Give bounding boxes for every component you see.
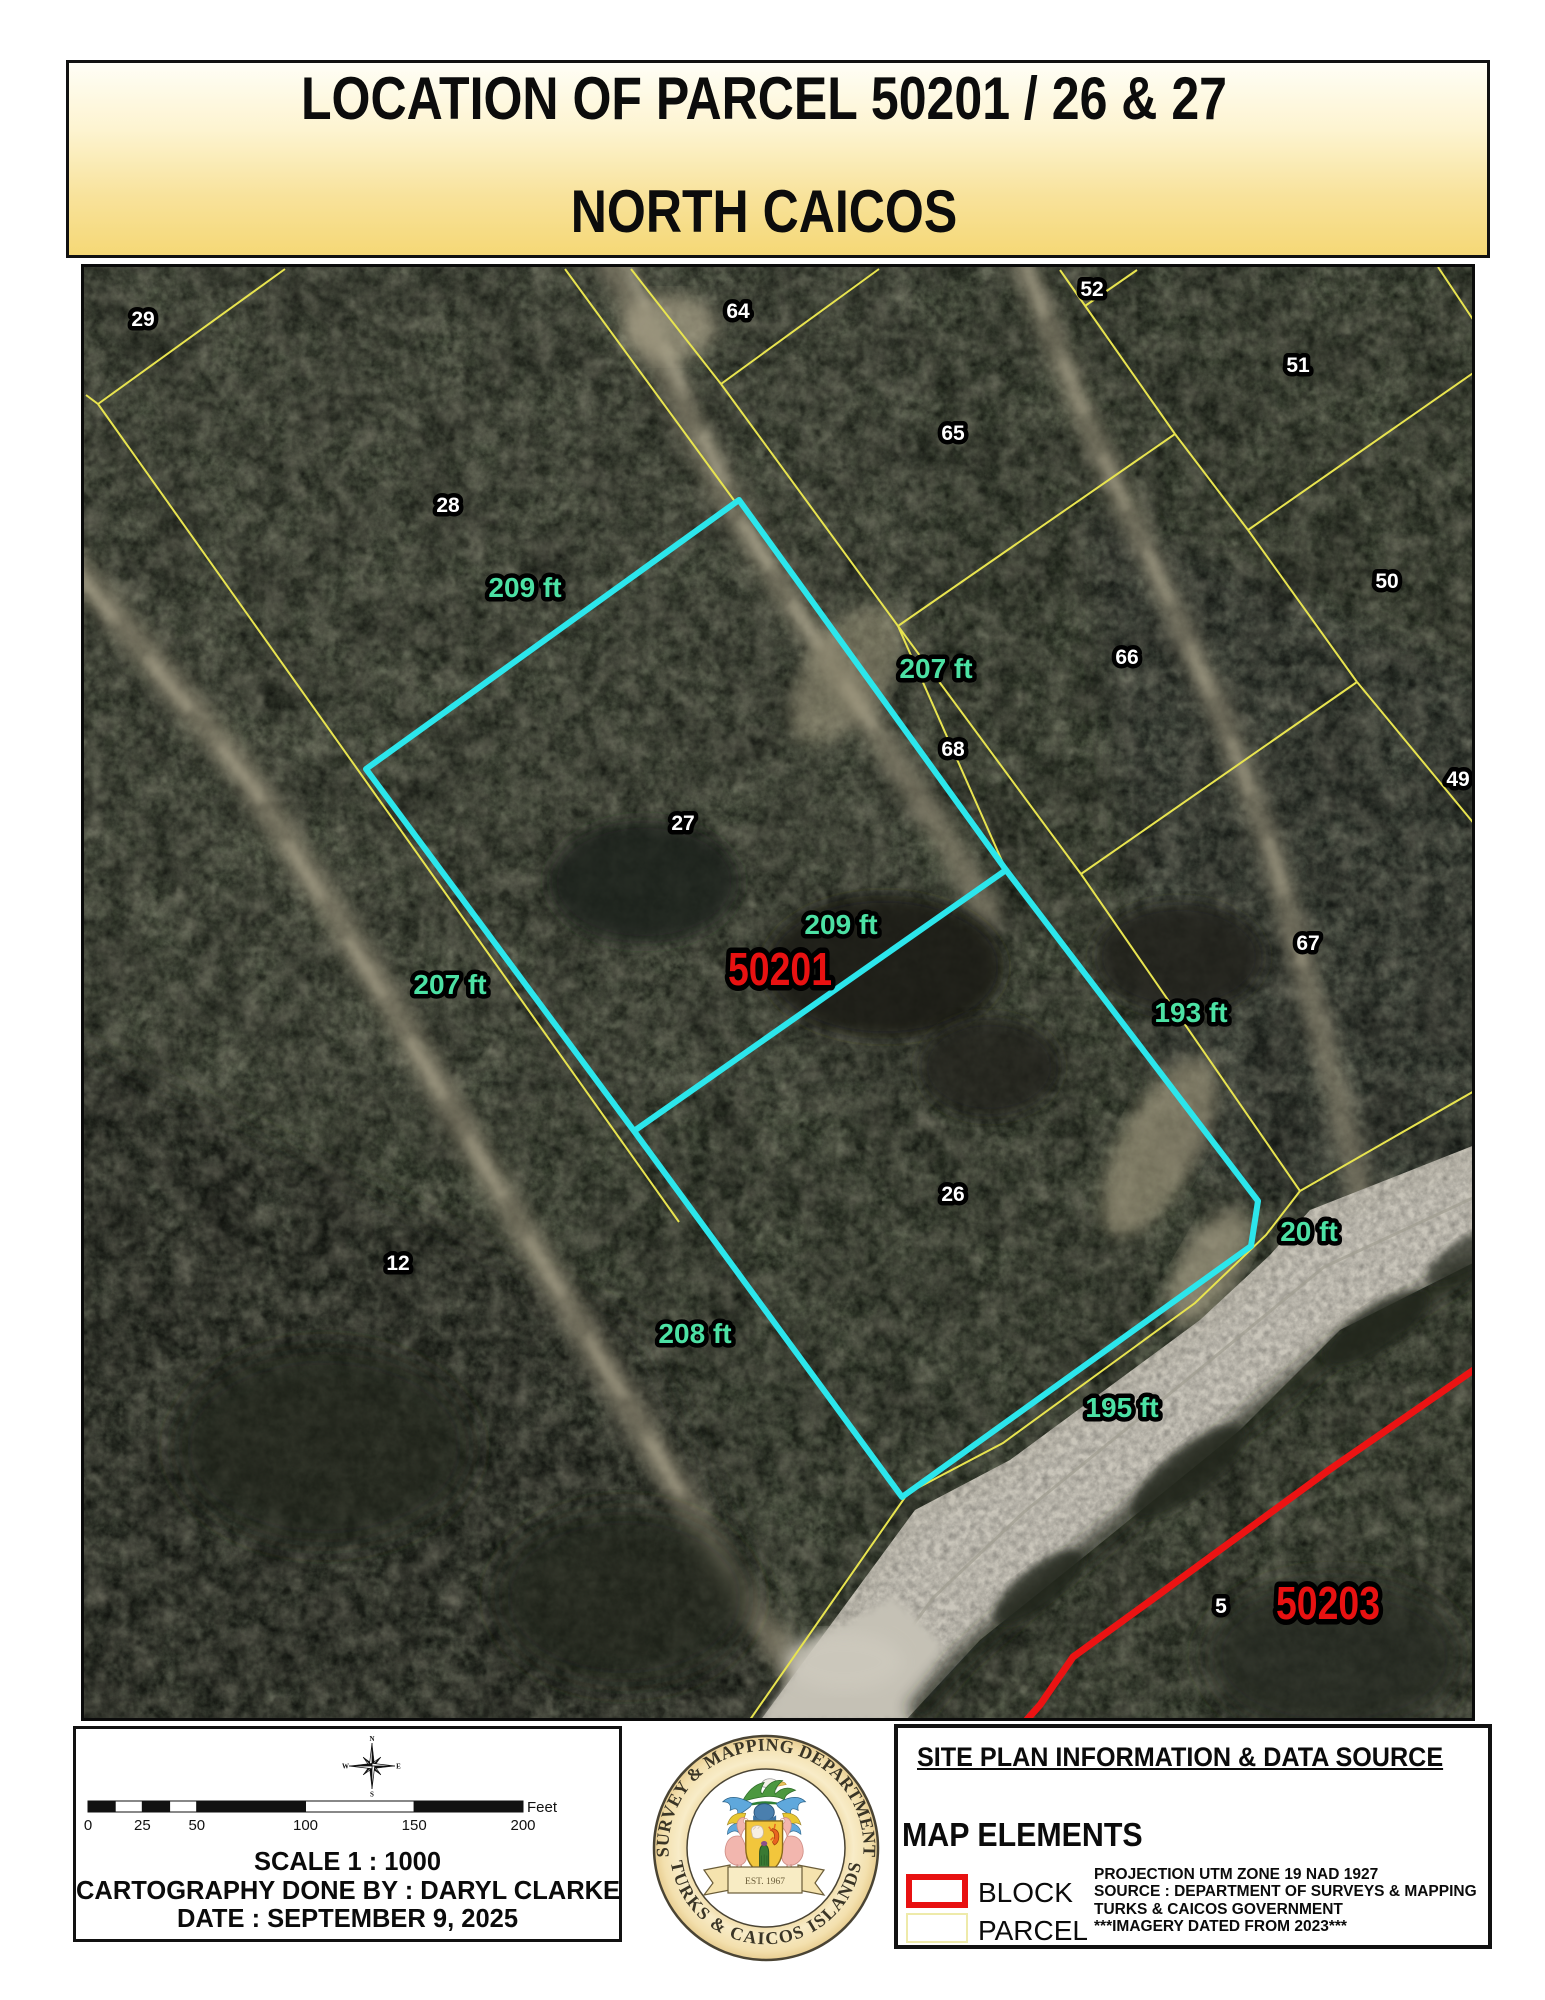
svg-text:0: 0: [84, 1817, 92, 1834]
svg-text:N: N: [369, 1735, 374, 1743]
svg-text:50201: 50201: [728, 943, 832, 995]
svg-text:200: 200: [510, 1817, 535, 1834]
svg-text:207 ft: 207 ft: [899, 653, 972, 684]
svg-text:5: 5: [1215, 1595, 1227, 1618]
svg-text:64: 64: [726, 300, 750, 323]
svg-text:67: 67: [1296, 932, 1319, 955]
svg-text:27: 27: [671, 812, 694, 835]
svg-text:50203: 50203: [1276, 1577, 1380, 1629]
svg-text:E: E: [396, 1762, 401, 1770]
svg-text:150: 150: [402, 1817, 427, 1834]
svg-text:49: 49: [1446, 768, 1469, 791]
svg-text:51: 51: [1286, 354, 1310, 377]
svg-text:25: 25: [134, 1817, 151, 1834]
svg-text:12: 12: [386, 1252, 409, 1275]
svg-text:Feet: Feet: [527, 1799, 558, 1816]
svg-text:50: 50: [1375, 570, 1398, 593]
svg-text:195 ft: 195 ft: [1085, 1392, 1158, 1423]
svg-text:193 ft: 193 ft: [1154, 997, 1227, 1028]
svg-text:W: W: [342, 1762, 349, 1770]
svg-text:68: 68: [941, 738, 965, 761]
svg-text:50: 50: [188, 1817, 205, 1834]
svg-text:207 ft: 207 ft: [413, 969, 486, 1000]
svg-text:100: 100: [293, 1817, 318, 1834]
svg-text:S: S: [370, 1791, 374, 1799]
svg-text:29: 29: [131, 308, 154, 331]
svg-text:20 ft: 20 ft: [1280, 1216, 1338, 1247]
svg-text:28: 28: [436, 494, 460, 517]
svg-text:65: 65: [941, 422, 965, 445]
svg-text:209 ft: 209 ft: [804, 909, 877, 940]
svg-text:52: 52: [1080, 278, 1103, 301]
svg-text:EST. 1967: EST. 1967: [745, 1877, 785, 1887]
svg-text:209 ft: 209 ft: [488, 572, 561, 603]
svg-text:66: 66: [1115, 646, 1138, 669]
svg-text:26: 26: [941, 1183, 964, 1206]
svg-text:208 ft: 208 ft: [658, 1318, 731, 1349]
